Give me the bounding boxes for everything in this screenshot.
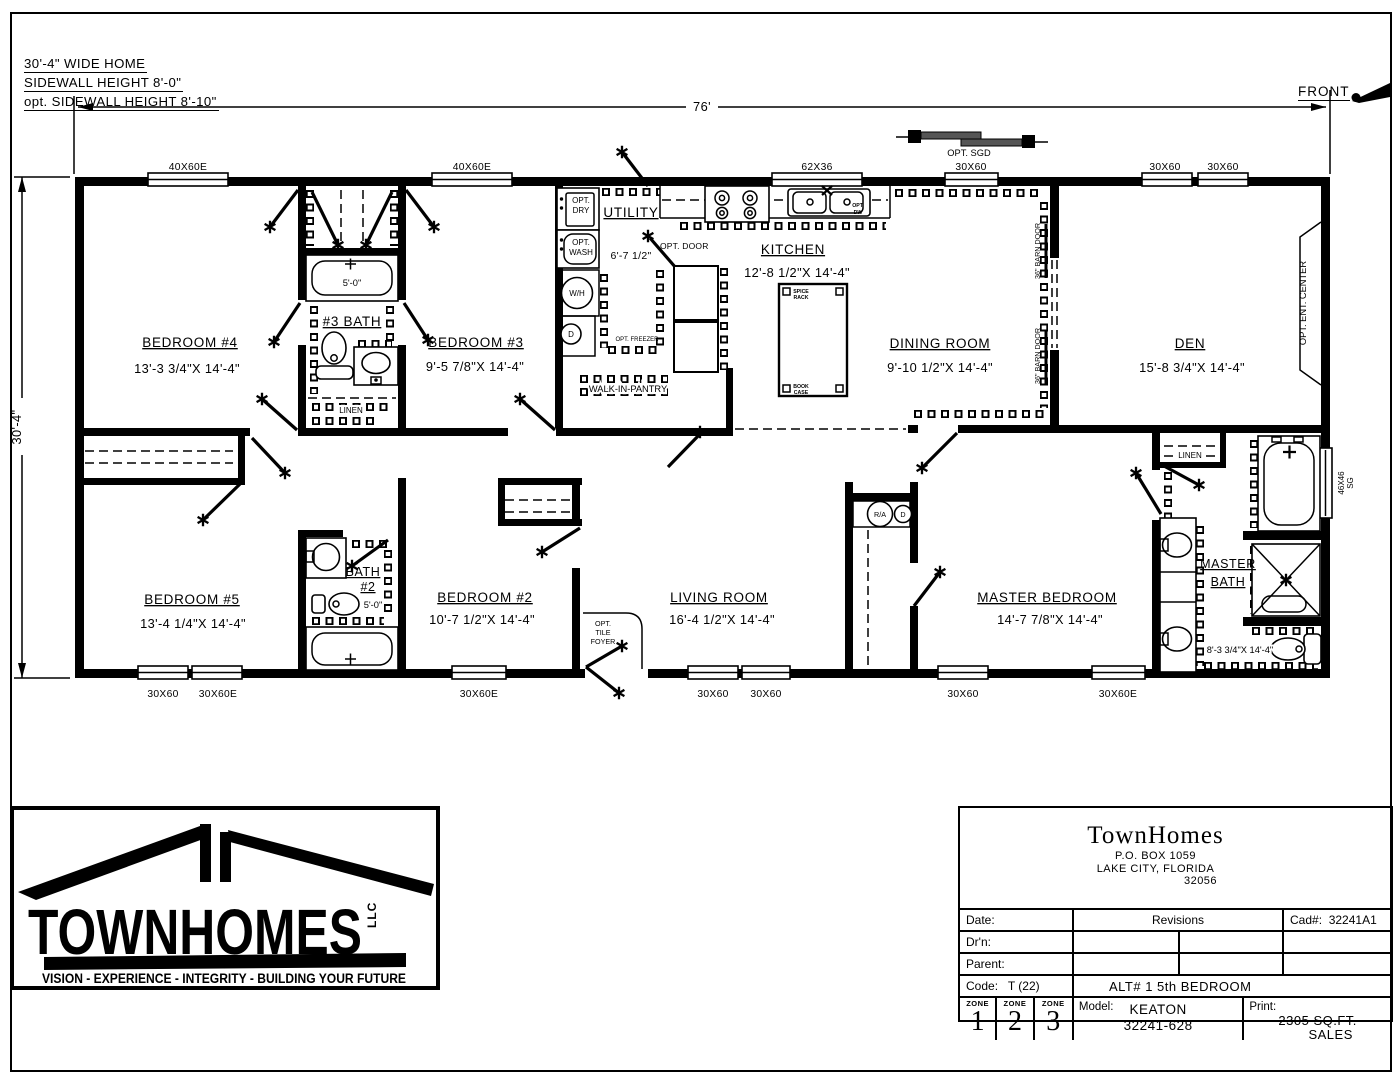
logo-roof-right bbox=[228, 830, 434, 896]
svg-text:D: D bbox=[568, 330, 574, 339]
bath2-tub bbox=[306, 627, 398, 670]
parent-label: Parent: bbox=[960, 954, 1072, 974]
den-dims: 15'-8 3/4"X 14'-4" bbox=[1139, 360, 1245, 375]
foyer-tile-boundary: OPT. TILE FOYER bbox=[583, 613, 642, 669]
window: 30X60 bbox=[742, 666, 790, 700]
model-label: Model: bbox=[1079, 1001, 1114, 1013]
washer: OPT. WASH bbox=[557, 230, 599, 268]
master-toilet bbox=[1271, 634, 1321, 664]
svg-text:DW: DW bbox=[854, 210, 863, 216]
svg-text:R/A: R/A bbox=[874, 510, 886, 519]
master-shower bbox=[1252, 544, 1320, 616]
logo-box: TOWNHOMES LLC VISION - EXPERIENCE - INTE… bbox=[10, 806, 440, 990]
masterbath-label2: BATH bbox=[1211, 575, 1246, 589]
master-tub bbox=[1258, 436, 1320, 531]
svg-text:D: D bbox=[900, 510, 905, 519]
barn-door-label: 36" BARN DOOR bbox=[1033, 223, 1042, 279]
cad-value: 32241A1 bbox=[1329, 913, 1377, 927]
company-addr2: LAKE CITY, FLORIDA bbox=[960, 863, 1351, 876]
date-label: Date: bbox=[960, 910, 1072, 930]
company-addr1: P.O. BOX 1059 bbox=[960, 850, 1351, 863]
floor-plan-sheet: { "header": { "line1": "30'-4\" WIDE HOM… bbox=[0, 0, 1400, 1082]
svg-text:30X60: 30X60 bbox=[697, 689, 728, 700]
svg-text:OPT.: OPT. bbox=[595, 619, 611, 628]
floor-plan-drawing: 76' 30'-4" OPT. SGD bbox=[0, 0, 1400, 790]
living-dims: 16'-4 1/2"X 14'-4" bbox=[669, 612, 775, 627]
logo-llc: LLC bbox=[365, 902, 379, 928]
master-vanity bbox=[1160, 518, 1196, 672]
living-label: LIVING ROOM bbox=[670, 590, 768, 605]
kitchen-island: SPICE RACK BOOK CASE bbox=[779, 284, 847, 396]
model-number: 32241-628 bbox=[1074, 1018, 1242, 1034]
utility-label: UTILITY bbox=[603, 205, 658, 220]
bath2-toilet bbox=[312, 593, 359, 615]
masterbath-dims: 8'-3 3/4"X 14'-4" bbox=[1207, 645, 1274, 655]
svg-text:30X60: 30X60 bbox=[750, 689, 781, 700]
townhomes-logo: TOWNHOMES LLC VISION - EXPERIENCE - INTE… bbox=[14, 810, 436, 986]
window: 62X36 bbox=[772, 162, 862, 186]
code-label: Code: bbox=[966, 979, 998, 993]
svg-text:W/H: W/H bbox=[569, 289, 585, 298]
zone-box-1: ZONE 1 bbox=[960, 998, 997, 1040]
window: 30X60 bbox=[945, 162, 998, 186]
drn-row: Dr'n: bbox=[960, 930, 1391, 952]
title-block: TownHomes P.O. BOX 1059 LAKE CITY, FLORI… bbox=[958, 806, 1393, 1022]
dim-depth-text: 30'-4" bbox=[9, 410, 24, 445]
svg-text:46X46: 46X46 bbox=[1337, 471, 1346, 495]
code-value: T (22) bbox=[1008, 979, 1040, 993]
model-cell: Model: KEATON 32241-628 bbox=[1072, 998, 1242, 1040]
svg-text:DRY: DRY bbox=[573, 206, 590, 215]
bath3-sink bbox=[354, 347, 398, 385]
alt-description: ALT# 1 5th BEDROOM bbox=[1072, 976, 1390, 996]
cad-label: Cad#: bbox=[1290, 913, 1322, 927]
svg-text:30X60E: 30X60E bbox=[199, 689, 237, 700]
logo-tagline: VISION - EXPERIENCE - INTEGRITY - BUILDI… bbox=[42, 971, 406, 986]
bath2-tub-dim: 5'-0" bbox=[364, 600, 383, 610]
window: 30X60 bbox=[138, 666, 188, 700]
bedroom2-label: BEDROOM #2 bbox=[437, 590, 533, 605]
svg-text:30X60: 30X60 bbox=[1149, 162, 1180, 173]
bath3-linen-label: LINEN bbox=[339, 406, 363, 415]
opt-sgd-symbol: OPT. SGD bbox=[896, 130, 1048, 158]
svg-text:40X60E: 40X60E bbox=[169, 162, 207, 173]
company-zip: 32056 bbox=[1050, 875, 1351, 888]
cad-cell: Cad#: 32241A1 bbox=[1282, 910, 1390, 930]
window: 40X60E bbox=[148, 162, 228, 186]
svg-text:30X60: 30X60 bbox=[947, 689, 978, 700]
date-revisions-row: Date: Revisions Cad#: 32241A1 bbox=[960, 908, 1391, 930]
ra-closet: R/A D bbox=[853, 501, 912, 527]
master-label: MASTER BEDROOM bbox=[977, 590, 1117, 605]
code-row: Code: T (22) ALT# 1 5th BEDROOM bbox=[960, 974, 1391, 996]
logo-roof-left bbox=[18, 826, 206, 900]
opt-ent-center: OPT. ENT. CENTER bbox=[1298, 222, 1321, 385]
window: 30X60 bbox=[938, 666, 988, 700]
dimension-overall-width: 76' bbox=[74, 90, 1330, 174]
window: 30X60 bbox=[1142, 162, 1192, 186]
opt-door-label: OPT. DOOR bbox=[660, 241, 709, 251]
dining-label: DINING ROOM bbox=[890, 336, 991, 351]
logo-peak-bar bbox=[220, 832, 231, 882]
zone-box-2: ZONE 2 bbox=[997, 998, 1034, 1040]
company-name: TownHomes bbox=[960, 822, 1351, 850]
bath3-tub: 5'-0" bbox=[306, 255, 398, 301]
bedroom3-label: BEDROOM #3 bbox=[428, 335, 524, 350]
window: 30X60 bbox=[1198, 162, 1248, 186]
svg-text:CASE: CASE bbox=[794, 390, 809, 396]
svg-text:FOYER: FOYER bbox=[591, 637, 616, 646]
kitchen-sink: OPT. DW bbox=[788, 186, 870, 216]
bath3-label: #3 BATH bbox=[323, 314, 382, 329]
bath2-sink bbox=[306, 538, 346, 578]
bath3-toilet bbox=[316, 332, 353, 379]
svg-text:30X60: 30X60 bbox=[1207, 162, 1238, 173]
kitchen-label: KITCHEN bbox=[761, 242, 825, 257]
title-block-company: TownHomes P.O. BOX 1059 LAKE CITY, FLORI… bbox=[960, 822, 1391, 908]
svg-text:OPT.: OPT. bbox=[572, 196, 590, 205]
svg-text:30X60E: 30X60E bbox=[1099, 689, 1137, 700]
bedroom4-label: BEDROOM #4 bbox=[142, 335, 238, 350]
svg-text:40X60E: 40X60E bbox=[453, 162, 491, 173]
svg-text:30X60E: 30X60E bbox=[460, 689, 498, 700]
opt-sgd-label: OPT. SGD bbox=[947, 148, 991, 158]
window: 30X60E bbox=[452, 666, 506, 700]
utility-dims: 6'-7 1/2" bbox=[610, 250, 651, 262]
dimension-overall-depth: 30'-4" bbox=[9, 177, 70, 678]
svg-text:WASH: WASH bbox=[569, 248, 593, 257]
svg-text:OPT.: OPT. bbox=[572, 238, 590, 247]
print-sqft: 2305 SQ.FT. bbox=[1244, 1014, 1391, 1028]
bedroom4-dims: 13'-3 3/4"X 14'-4" bbox=[134, 361, 240, 376]
svg-text:OPT.: OPT. bbox=[852, 203, 864, 209]
bedroom5-dims: 13'-4 1/4"X 14'-4" bbox=[140, 616, 246, 631]
window: 46X46 SG bbox=[1319, 448, 1355, 518]
master-linen-label: LINEN bbox=[1178, 451, 1202, 460]
print-sales: SALES bbox=[1270, 1028, 1391, 1042]
revisions-label: Revisions bbox=[1072, 910, 1282, 930]
window: 30X60E bbox=[1092, 666, 1145, 700]
svg-text:SG: SG bbox=[1346, 477, 1355, 489]
window: 30X60E bbox=[192, 666, 242, 700]
svg-text:5'-0": 5'-0" bbox=[343, 278, 362, 288]
svg-text:30X60: 30X60 bbox=[147, 689, 178, 700]
barn-door-label: 36" BARN DOOR bbox=[1033, 328, 1042, 384]
dining-dims: 9'-10 1/2"X 14'-4" bbox=[887, 360, 993, 375]
opt-freezer-label: OPT. FREEZER bbox=[615, 337, 659, 343]
print-label: Print: bbox=[1249, 1001, 1276, 1013]
den-label: DEN bbox=[1175, 336, 1206, 351]
dim-width-text: 76' bbox=[693, 99, 711, 114]
bath2-number: #2 bbox=[360, 580, 375, 594]
bedroom2-dims: 10'-7 1/2"X 14'-4" bbox=[429, 612, 535, 627]
svg-text:TILE: TILE bbox=[595, 628, 610, 637]
zone-box-3: ZONE 3 bbox=[1035, 998, 1072, 1040]
svg-text:OPT. ENT. CENTER: OPT. ENT. CENTER bbox=[1298, 261, 1308, 345]
bedroom3-dims: 9'-5 7/8"X 14'-4" bbox=[426, 359, 524, 374]
code-cell: Code: T (22) bbox=[960, 976, 1072, 996]
dryer: OPT. DRY bbox=[557, 188, 599, 230]
zone-boxes: ZONE 1 ZONE 2 ZONE 3 bbox=[960, 998, 1072, 1040]
masterbath-label1: MASTER bbox=[1200, 557, 1256, 571]
window: 30X60 bbox=[688, 666, 738, 700]
svg-text:RACK: RACK bbox=[794, 295, 809, 301]
bedroom5-label: BEDROOM #5 bbox=[144, 592, 240, 607]
logo-peak-bar bbox=[200, 824, 211, 882]
refrigerator bbox=[674, 266, 718, 372]
window: 40X60E bbox=[432, 162, 512, 186]
pantry-label: WALK-IN-PANTRY bbox=[589, 384, 667, 394]
bath2-label: BATH bbox=[346, 565, 381, 579]
svg-text:30X60: 30X60 bbox=[955, 162, 986, 173]
drn-label: Dr'n: bbox=[960, 932, 1072, 952]
kitchen-dims: 12'-8 1/2"X 14'-4" bbox=[744, 265, 850, 280]
range bbox=[705, 186, 769, 222]
master-dims: 14'-7 7/8"X 14'-4" bbox=[997, 612, 1103, 627]
print-cell: Print: 2305 SQ.FT. SALES bbox=[1242, 998, 1391, 1040]
zone-model-print-row: ZONE 1 ZONE 2 ZONE 3 Model: KEATON 32241… bbox=[960, 996, 1391, 1040]
parent-row: Parent: bbox=[960, 952, 1391, 974]
svg-text:62X36: 62X36 bbox=[801, 162, 832, 173]
